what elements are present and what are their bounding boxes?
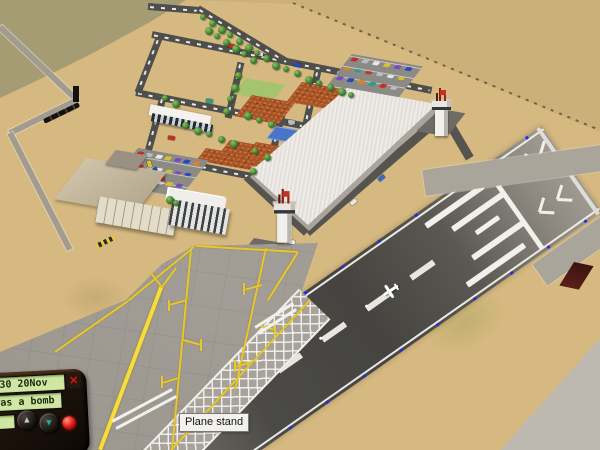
tree — [230, 140, 238, 148]
tree — [162, 95, 168, 101]
tree — [283, 66, 289, 72]
message-ticker: was a bomb — [0, 393, 62, 411]
tree — [223, 39, 230, 46]
tree — [268, 121, 275, 128]
parked-car — [383, 63, 391, 67]
parked-car — [390, 86, 398, 90]
mini-display — [0, 415, 15, 429]
alert-led-icon — [62, 416, 76, 430]
parked-car — [361, 59, 369, 63]
parked-car — [386, 74, 394, 78]
tree — [218, 26, 226, 34]
tree — [205, 27, 213, 35]
parked-car — [397, 76, 405, 80]
hud-device: :30 20Nov ✕ was a bomb ▲ ▼ — [0, 368, 90, 450]
tree — [264, 154, 271, 161]
parked-car — [336, 76, 344, 80]
tree — [206, 131, 212, 137]
tree — [218, 136, 225, 143]
tree — [227, 32, 233, 38]
tree — [338, 88, 346, 96]
tree — [348, 92, 354, 98]
parked-car — [346, 78, 354, 82]
beacon-icon — [283, 191, 290, 197]
tree — [305, 76, 313, 84]
runway-stripe — [451, 191, 505, 231]
tree — [172, 100, 180, 108]
stand-taxiline — [234, 360, 236, 372]
stand-taxiline — [243, 283, 245, 295]
tree — [244, 112, 252, 120]
tree — [245, 44, 253, 52]
parked-car — [164, 156, 172, 160]
parked-car — [174, 158, 182, 162]
parked-car — [368, 82, 376, 86]
parked-car — [354, 69, 362, 73]
stand-taxiline — [200, 339, 202, 351]
parked-car — [183, 159, 191, 163]
parked-car — [365, 71, 373, 75]
scroll-up-button[interactable]: ▲ — [17, 410, 37, 430]
antenna-icon — [278, 194, 280, 203]
stand-taxiline — [274, 323, 276, 335]
parked-car — [357, 80, 365, 84]
tree — [263, 55, 270, 62]
runway-stripe — [475, 215, 501, 235]
parked-car — [350, 57, 358, 61]
chevron-bar — [557, 198, 572, 202]
clock-display: :30 20Nov — [0, 375, 65, 394]
stand-taxiline — [161, 376, 163, 388]
control-tower[interactable] — [270, 189, 299, 247]
tree — [173, 200, 179, 206]
tree — [231, 84, 239, 92]
parked-car — [343, 67, 351, 71]
parked-car — [174, 171, 182, 175]
tree — [209, 20, 216, 27]
beacon-icon — [440, 90, 446, 95]
threshold-chevron-icon — [551, 181, 577, 208]
tree — [294, 70, 301, 77]
parked-car — [183, 172, 191, 176]
tree — [200, 14, 206, 20]
parked-car — [405, 67, 413, 71]
tree — [232, 45, 240, 53]
parked-car — [192, 161, 200, 165]
street-dashes — [150, 6, 198, 11]
tree — [235, 72, 242, 79]
threshold-chevron-icon — [533, 193, 559, 220]
stand-taxiline — [168, 300, 170, 311]
tree — [223, 108, 230, 115]
chevron-bar — [539, 211, 554, 215]
parked-car — [165, 182, 173, 186]
tower-cab — [274, 203, 295, 213]
tree — [250, 57, 257, 64]
parked-car — [394, 65, 402, 69]
tree — [236, 38, 243, 45]
tooltip: Plane stand — [179, 413, 249, 432]
tree — [227, 96, 233, 102]
tree — [254, 50, 260, 56]
antenna-icon — [436, 93, 438, 101]
parked-car — [375, 72, 383, 76]
tree — [256, 117, 262, 123]
tree — [214, 33, 220, 39]
tree — [241, 51, 247, 57]
tree — [272, 62, 280, 70]
parked-car — [379, 84, 387, 88]
scroll-down-button[interactable]: ▼ — [39, 413, 59, 433]
parked-car — [372, 61, 380, 65]
tree — [316, 80, 322, 86]
close-icon[interactable]: ✕ — [66, 373, 82, 389]
tree — [182, 122, 189, 129]
parked-car — [155, 154, 163, 158]
parked-car — [174, 184, 182, 188]
tower-cab — [432, 101, 451, 110]
game-viewport[interactable]: Plane stand :30 20Nov ✕ was a bomb ▲ ▼ — [0, 0, 600, 450]
control-tower[interactable] — [429, 88, 455, 140]
tree — [327, 84, 334, 91]
runway-stripe — [471, 220, 525, 260]
road-sign-post — [73, 86, 79, 102]
tree — [250, 168, 257, 175]
tower-body — [277, 214, 292, 243]
tower-body — [435, 110, 448, 136]
tree — [252, 148, 258, 154]
tree — [194, 127, 202, 135]
